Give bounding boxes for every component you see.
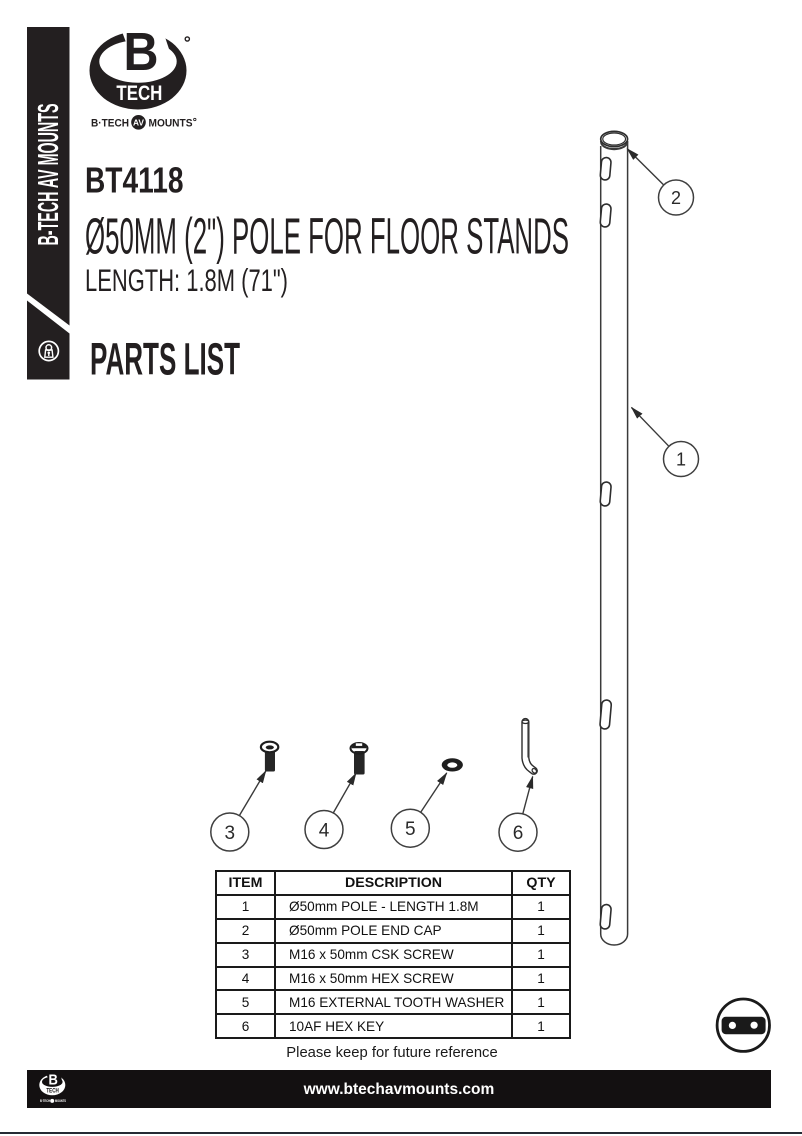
svg-text:2: 2	[671, 188, 681, 208]
svg-text:LENGTH: 1.8M (71"): LENGTH: 1.8M (71")	[85, 262, 288, 298]
svg-text:PARTS LIST: PARTS LIST	[90, 334, 240, 385]
svg-text:Ø50MM (2") POLE FOR FLOOR STAN: Ø50MM (2") POLE FOR FLOOR STANDS	[85, 208, 569, 265]
svg-text:4: 4	[319, 821, 330, 842]
svg-text:3: 3	[225, 823, 236, 844]
svg-text:B-TECH AV MOUNTS: B-TECH AV MOUNTS	[33, 103, 65, 245]
svg-text:B·TECH: B·TECH	[91, 118, 129, 130]
svg-text:MOUNTS: MOUNTS	[55, 1099, 66, 1103]
svg-text:6: 6	[513, 823, 524, 844]
svg-text:AV: AV	[133, 118, 145, 127]
svg-text:MOUNTS: MOUNTS	[149, 118, 193, 130]
svg-text:TECH: TECH	[116, 81, 162, 105]
svg-text:BT4118: BT4118	[85, 160, 184, 201]
svg-text:B·TECH: B·TECH	[40, 1099, 50, 1103]
svg-text:B: B	[124, 22, 159, 82]
svg-text:5: 5	[405, 819, 416, 840]
svg-text:1: 1	[676, 450, 686, 470]
